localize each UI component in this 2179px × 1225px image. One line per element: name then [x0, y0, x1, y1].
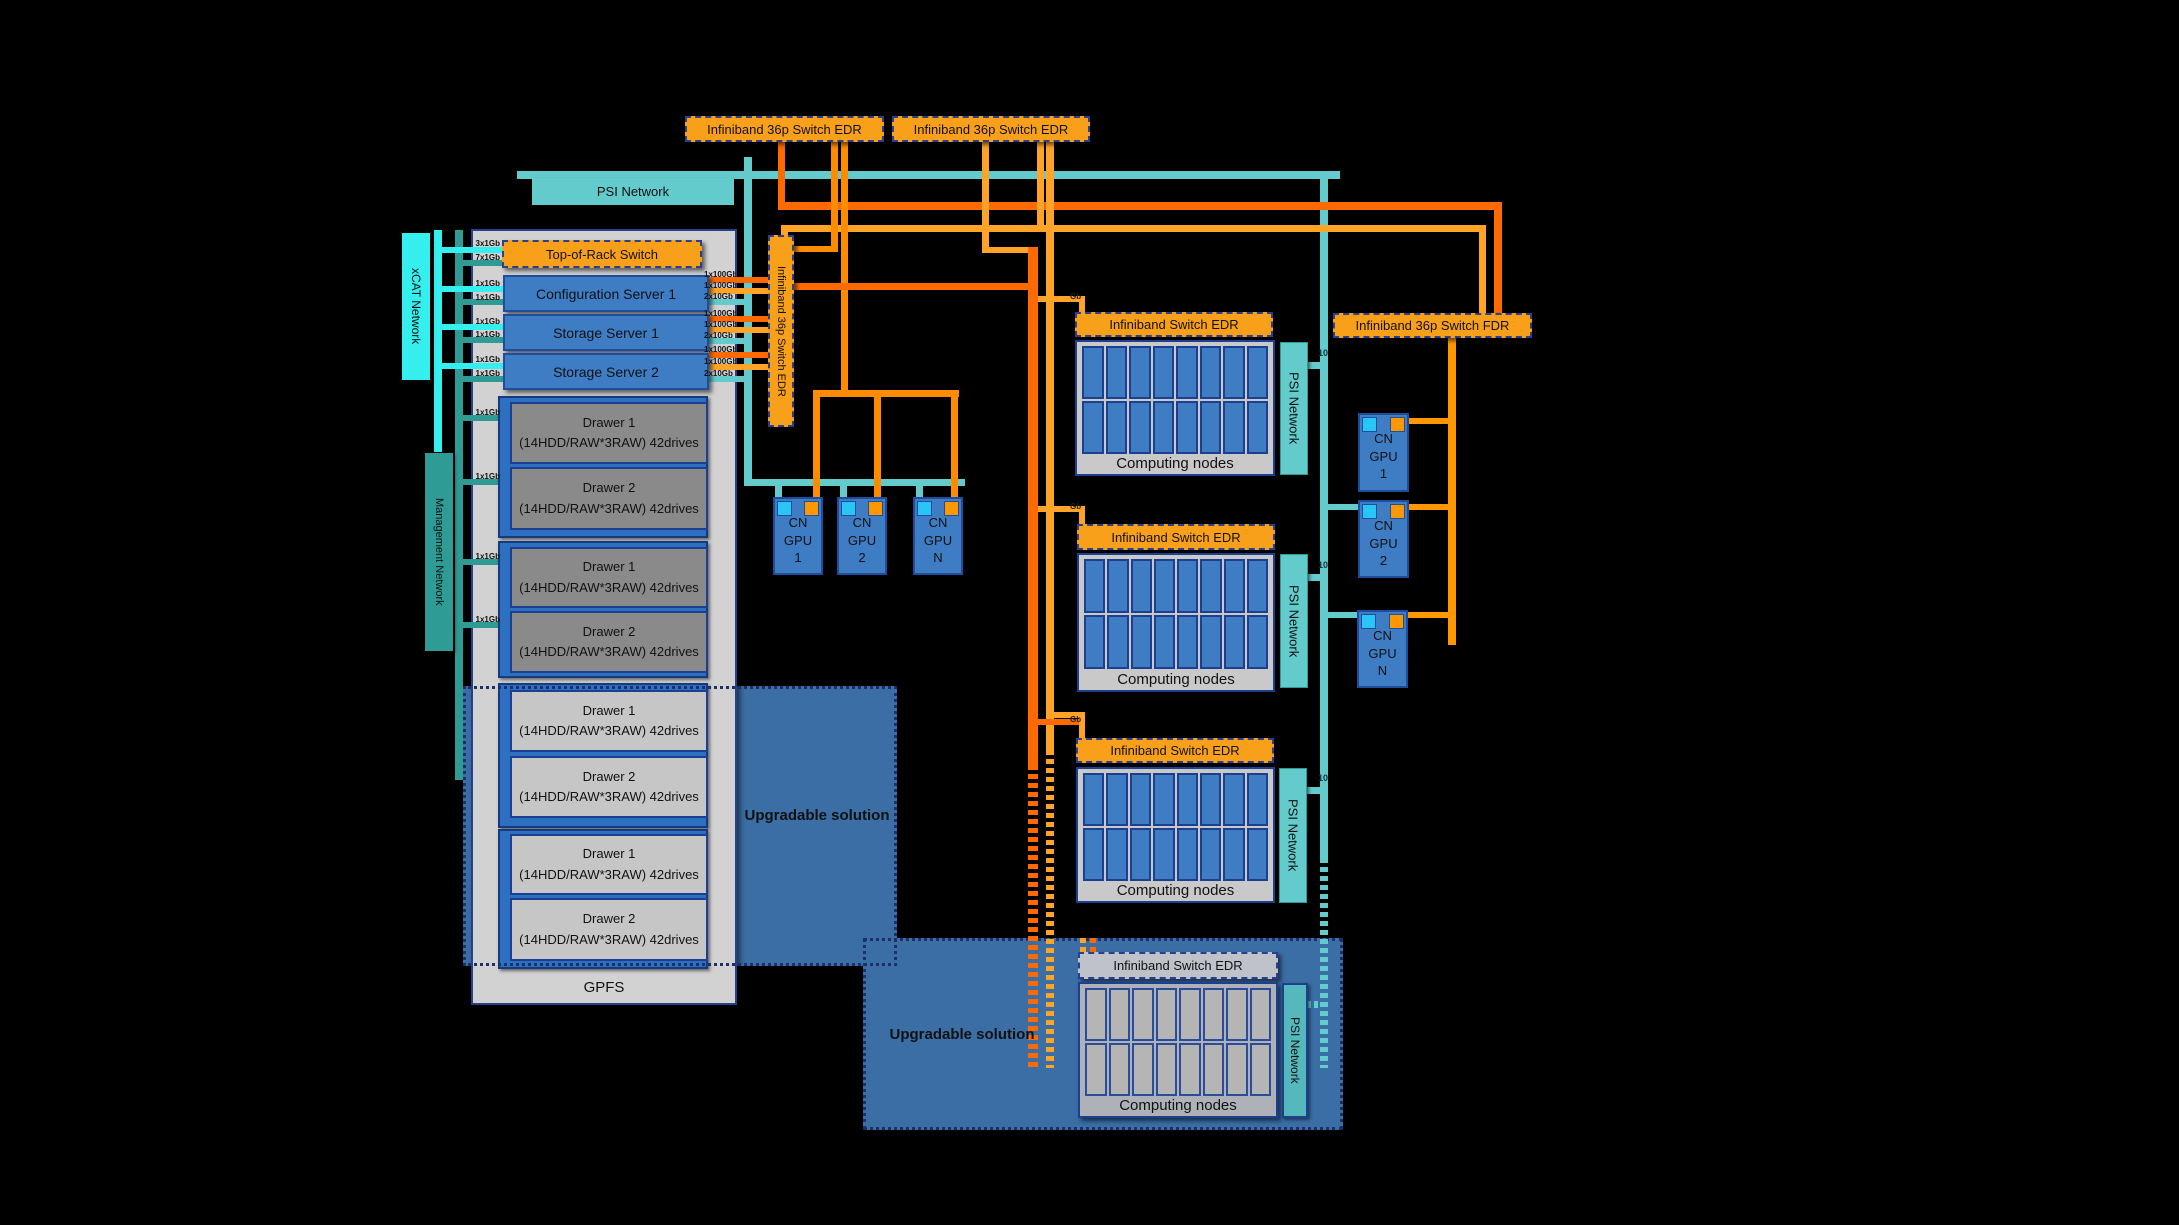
compute-node-cell: [1153, 401, 1175, 454]
psi-port-icon: [841, 501, 856, 516]
rgpu1-stub: [1409, 418, 1448, 424]
compute-node-cell: [1200, 559, 1221, 613]
port-label-1x1gb: 1x1Gb: [472, 356, 500, 364]
compute-node-cell: [1203, 988, 1225, 1041]
switch-label: Infiniband 36p Switch EDR: [707, 122, 862, 137]
sw2-port2-line: [1037, 142, 1044, 232]
psi-stub-block4-dashed: [1307, 1001, 1320, 1008]
compute-node-cell: [1082, 401, 1104, 454]
uplink-label-1x100gb: 1x100Gb: [704, 346, 736, 354]
drawer-title: Drawer 2: [583, 622, 636, 642]
psi-stub-rgpun: [1328, 612, 1357, 618]
port-label-1x1gb: 1x1Gb: [472, 294, 500, 302]
fdr-feed-dark: [1494, 202, 1502, 313]
uplink-label-1x100gb: 1x100Gb: [704, 321, 736, 329]
compute-node-cell: [1250, 1043, 1272, 1096]
drawer-spec: (14HDD/RAW*3RAW) 42drives: [519, 642, 699, 662]
compute-node-cell: [1106, 346, 1128, 399]
gpu-line2: GPU: [1360, 448, 1407, 466]
compute-node-cell: [1247, 828, 1268, 881]
server-text: Storage Server 1: [553, 325, 659, 341]
compute-node-cell: [1226, 1043, 1248, 1096]
psi-network-text: PSI Network: [597, 184, 669, 199]
compute-node-cell: [1176, 401, 1198, 454]
compute-node-cell: [1107, 559, 1128, 613]
psi-stub-block1: [1308, 362, 1320, 369]
drawer-spec: (14HDD/RAW*3RAW) 42drives: [519, 930, 699, 950]
port-label-1x1gb: 1x1Gb: [472, 280, 500, 288]
psi-bar-text: PSI Network: [1286, 799, 1301, 871]
rgpu2-stub: [1409, 504, 1448, 510]
port-label-1x1gb: 1x1Gb: [472, 616, 500, 624]
compute-node-cell: [1200, 346, 1222, 399]
gpu-line2: GPU: [775, 532, 821, 550]
psi-bar-text: PSI Network: [1287, 372, 1302, 444]
xcat-bus-line: [434, 230, 442, 452]
ib-port-icon: [944, 501, 959, 516]
vswitch-trunk-link: [794, 283, 1028, 290]
xcat-network-box: xCAT Network: [402, 233, 430, 380]
gpu-line1: CN: [1359, 627, 1406, 645]
compute-node-cell: [1247, 346, 1269, 399]
cn-gpu-2: CNGPU2: [837, 497, 887, 575]
compute-node-cell: [1177, 773, 1198, 826]
compute-node-cell: [1226, 988, 1248, 1041]
compute-node-cell: [1223, 401, 1245, 454]
edr-fdr-trunk-dark: [778, 202, 1502, 210]
vertical-switch-text: Infiniband 36p Switch EDR: [775, 266, 787, 397]
server-text: Configuration Server 1: [536, 286, 676, 302]
compute-node-cell: [1130, 773, 1151, 826]
compute-node-cell: [1179, 988, 1201, 1041]
drawer-title: Drawer 2: [583, 478, 636, 498]
top-of-rack-text: Top-of-Rack Switch: [546, 247, 658, 262]
gpu-line1: CN: [1360, 430, 1407, 448]
gpu-line2: GPU: [1360, 535, 1407, 553]
compute-block3: Computing nodes: [1076, 767, 1275, 903]
compute-block3-switch: Infiniband Switch EDR: [1076, 738, 1274, 763]
management-network-box: Management Network: [425, 453, 453, 651]
port-label-1x1gb: 1x1Gb: [472, 370, 500, 378]
compute-node-cell: [1200, 401, 1222, 454]
compute-node-cell: [1203, 1043, 1225, 1096]
compute-node-cell: [1084, 559, 1105, 613]
hpc-architecture-diagram: Infiniband 36p Switch EDR Infiniband 36p…: [0, 0, 2179, 1225]
compute-node-cell: [1247, 615, 1268, 669]
drawer-1-2: Drawer 2(14HDD/RAW*3RAW) 42drives: [510, 467, 708, 530]
computing-nodes-label: Computing nodes: [1083, 882, 1268, 899]
compute-node-cell: [1156, 988, 1178, 1041]
gpu-line3: 1: [1360, 465, 1407, 483]
gpu2-ib-stub: [874, 397, 881, 499]
compute-node-cell: [1085, 1043, 1107, 1096]
compute-node-cell: [1247, 773, 1268, 826]
uplink-label-2x10gb: 2x10Gb: [704, 370, 736, 378]
rgpun-stub: [1408, 612, 1448, 618]
compute-block1: Computing nodes: [1075, 340, 1275, 476]
compute-node-cell: [1083, 773, 1104, 826]
psi-stub-block2: [1308, 574, 1320, 581]
port-label-7x1gb: 7x1Gb: [472, 254, 500, 262]
port-label-1x1gb: 1x1Gb: [472, 553, 500, 561]
drawer-title: Drawer 1: [583, 557, 636, 577]
psi-network-label: PSI Network: [532, 178, 734, 205]
compute-node-cell: [1132, 988, 1154, 1041]
compute-node-cell: [1154, 615, 1175, 669]
psi-port-icon: [917, 501, 932, 516]
sw1-port2-line: [831, 142, 838, 252]
psi-port-icon: [777, 501, 792, 516]
drawer-4-1: Drawer 1(14HDD/RAW*3RAW) 42drives: [510, 834, 708, 895]
gpu-line3: 1: [775, 549, 821, 567]
configuration-server-1: Configuration Server 1: [503, 275, 709, 312]
cn-gpu-n: CNGPUN: [913, 497, 963, 575]
drawer-4-2: Drawer 2(14HDD/RAW*3RAW) 42drives: [510, 898, 708, 961]
compute-node-cell: [1085, 988, 1107, 1041]
block-switch-text: Infiniband Switch EDR: [1111, 530, 1240, 545]
compute-node-cell: [1107, 615, 1128, 669]
compute-node-cell: [1224, 615, 1245, 669]
sw1-port1-line: [778, 142, 785, 206]
compute-block3-psi: PSI Network: [1279, 768, 1307, 903]
top-of-rack-switch: Top-of-Rack Switch: [502, 240, 702, 268]
compute-block4-psi: PSI Network: [1282, 983, 1308, 1118]
port-label-1x1gb: 1x1Gb: [472, 473, 500, 481]
ib-port-icon: [804, 501, 819, 516]
uplink-label-2x10gb: 2x10Gb: [704, 293, 736, 301]
drawer-title: Drawer 1: [583, 701, 636, 721]
compute-node-cell: [1153, 828, 1174, 881]
infiniband-switch-edr-top-1: Infiniband 36p Switch EDR: [685, 116, 884, 142]
management-network-text: Management Network: [425, 453, 453, 651]
drawer-spec: (14HDD/RAW*3RAW) 42drives: [519, 721, 699, 741]
uplink-label-1x100gb: 1x100Gb: [704, 310, 736, 318]
gpu-line1: CN: [915, 514, 961, 532]
trunk-label-gb: Gb: [1070, 293, 1081, 301]
compute-node-cell: [1153, 346, 1175, 399]
drawer-spec: (14HDD/RAW*3RAW) 42drives: [519, 865, 699, 885]
port-label-1x1gb: 1x1Gb: [472, 331, 500, 339]
compute-node-cell: [1129, 346, 1151, 399]
fdr-feed-light: [1479, 225, 1486, 313]
drawer-spec: (14HDD/RAW*3RAW) 42drives: [519, 499, 699, 519]
uplink-label-1x100gb: 1x100Gb: [704, 282, 736, 290]
compute-node-grid: [1083, 773, 1268, 881]
psi-port-icon: [1362, 504, 1377, 519]
trunk-line-2-dashed: [1046, 750, 1054, 1068]
gpu1-ib-stub: [813, 397, 820, 499]
compute-node-cell: [1224, 559, 1245, 613]
compute-node-cell: [1083, 828, 1104, 881]
compute-node-grid: [1082, 346, 1268, 454]
compute-node-cell: [1177, 559, 1198, 613]
compute-block2-psi: PSI Network: [1280, 554, 1308, 688]
compute-node-cell: [1106, 773, 1127, 826]
gpu-line3: N: [1359, 662, 1406, 680]
compute-block1-psi: PSI Network: [1280, 342, 1308, 475]
compute-node-cell: [1200, 615, 1221, 669]
gpu-line1: CN: [1360, 517, 1407, 535]
block-switch-text: Infiniband Switch EDR: [1110, 743, 1239, 758]
psi-stub-rgpu2: [1328, 504, 1358, 510]
xcat-network-text: xCAT Network: [402, 233, 430, 380]
rgpu-rail: [1448, 338, 1456, 645]
port-label-3x1gb: 3x1Gb: [472, 240, 500, 248]
drawer-1-1: Drawer 1(14HDD/RAW*3RAW) 42drives: [510, 402, 708, 464]
computing-nodes-label: Computing nodes: [1082, 455, 1268, 472]
gpu-line3: 2: [839, 549, 885, 567]
gpu-line2: GPU: [839, 532, 885, 550]
psi-label-10: 10: [1318, 774, 1328, 783]
psi-stub-block3: [1307, 787, 1320, 794]
trunk-label-gb: Gb: [1070, 716, 1081, 724]
psi-bar-text: PSI Network: [1287, 585, 1302, 657]
compute-node-cell: [1223, 773, 1244, 826]
compute-node-grid: [1085, 988, 1271, 1096]
compute-node-cell: [1131, 615, 1152, 669]
compute-node-cell: [1106, 828, 1127, 881]
compute-node-cell: [1177, 615, 1198, 669]
gpu-line2: GPU: [1359, 645, 1406, 663]
compute-node-cell: [1106, 401, 1128, 454]
drawer-2-1: Drawer 1(14HDD/RAW*3RAW) 42drives: [510, 547, 708, 608]
psi-right-drop-line: [1320, 171, 1328, 858]
compute-node-cell: [1223, 346, 1245, 399]
compute-block4: Computing nodes: [1078, 982, 1278, 1118]
trunk-label-gb: Gb: [1070, 503, 1081, 511]
compute-node-grid: [1084, 559, 1268, 669]
sw2-port1-line: [982, 142, 989, 253]
psi-port-icon: [1362, 417, 1377, 432]
computing-nodes-label: Computing nodes: [1085, 1097, 1271, 1114]
gpu-psi-rail: [744, 479, 965, 486]
compute-node-cell: [1223, 828, 1244, 881]
infiniband-switch-edr-top-2: Infiniband 36p Switch EDR: [892, 116, 1090, 142]
drawer-title: Drawer 1: [583, 844, 636, 864]
sw1-port3-line: [841, 142, 848, 397]
management-bus-line: [455, 230, 463, 780]
port-label-1x1gb: 1x1Gb: [472, 409, 500, 417]
drawer-2-2: Drawer 2(14HDD/RAW*3RAW) 42drives: [510, 611, 708, 673]
cn-gpu-right-1: CNGPU1: [1358, 413, 1409, 492]
port-label-1x1gb: 1x1Gb: [472, 318, 500, 326]
infiniband-36p-switch-fdr: Infiniband 36p Switch FDR: [1333, 313, 1532, 338]
trunk-line-1: [1028, 247, 1038, 765]
ib-port-icon: [1390, 504, 1405, 519]
trunk-line-2: [1046, 142, 1054, 750]
gpu-ib-rail: [813, 390, 959, 397]
cn-gpu-right-2: CNGPU2: [1358, 500, 1409, 578]
ib-port-icon: [1389, 614, 1404, 629]
fdr-switch-text: Infiniband 36p Switch FDR: [1356, 318, 1510, 333]
compute-node-cell: [1177, 828, 1198, 881]
uplink-label-1x100gb: 1x100Gb: [704, 358, 736, 366]
compute-node-cell: [1247, 559, 1268, 613]
compute-node-cell: [1154, 559, 1175, 613]
drawer-title: Drawer 2: [583, 909, 636, 929]
compute-block1-switch: Infiniband Switch EDR: [1075, 312, 1273, 337]
compute-node-cell: [1129, 401, 1151, 454]
storage-server-2: Storage Server 2: [503, 353, 709, 390]
drawer-3-2: Drawer 2(14HDD/RAW*3RAW) 42drives: [510, 756, 708, 818]
upgradable-compute-text: Upgradable solution: [877, 1022, 1047, 1046]
gpu-line1: CN: [839, 514, 885, 532]
compute-node-cell: [1247, 401, 1269, 454]
drawer-spec: (14HDD/RAW*3RAW) 42drives: [519, 578, 699, 598]
drawer-spec: (14HDD/RAW*3RAW) 42drives: [519, 433, 699, 453]
compute-block2: Computing nodes: [1077, 553, 1275, 692]
drawer-spec: (14HDD/RAW*3RAW) 42drives: [519, 787, 699, 807]
psi-port-icon: [1361, 614, 1376, 629]
upgradable-storage-text: Upgradable solution: [742, 802, 892, 828]
ib-port-icon: [1390, 417, 1405, 432]
compute-node-cell: [1176, 346, 1198, 399]
compute-node-cell: [1109, 1043, 1131, 1096]
compute-node-cell: [1132, 1043, 1154, 1096]
compute-node-cell: [1109, 988, 1131, 1041]
compute-node-cell: [1200, 773, 1221, 826]
computing-nodes-label: Computing nodes: [1084, 671, 1268, 688]
psi-bar-text: PSI Network: [1288, 1017, 1302, 1084]
infiniband-36p-switch-edr-vertical: Infiniband 36p Switch EDR: [768, 235, 794, 427]
compute-block4-switch: Infiniband Switch EDR: [1078, 952, 1278, 979]
compute-node-cell: [1131, 559, 1152, 613]
psi-right-drop-line-dashed: [1320, 858, 1328, 1068]
server-text: Storage Server 2: [553, 364, 659, 380]
psi-label-10: 10: [1318, 561, 1328, 570]
gpun-ib-stub: [951, 397, 958, 499]
cn-gpu-right-n: CNGPUN: [1357, 610, 1408, 688]
compute-node-cell: [1130, 828, 1151, 881]
gpu-line2: GPU: [915, 532, 961, 550]
edr-fdr-trunk-light: [781, 225, 1486, 232]
block-switch-text: Infiniband Switch EDR: [1109, 317, 1238, 332]
compute-node-cell: [1250, 988, 1272, 1041]
ib-port-icon: [868, 501, 883, 516]
gpu-line1: CN: [775, 514, 821, 532]
compute-node-cell: [1153, 773, 1174, 826]
compute-node-cell: [1179, 1043, 1201, 1096]
compute-node-cell: [1082, 346, 1104, 399]
drawer-title: Drawer 1: [583, 413, 636, 433]
cn-gpu-1: CNGPU1: [773, 497, 823, 575]
uplink-label-2x10gb: 2x10Gb: [704, 332, 736, 340]
compute-node-cell: [1084, 615, 1105, 669]
psi-label-10: 10: [1318, 349, 1328, 358]
vswitch-sw1-link: [794, 246, 838, 252]
compute-node-cell: [1156, 1043, 1178, 1096]
compute-node-cell: [1200, 828, 1221, 881]
switch-label: Infiniband 36p Switch EDR: [914, 122, 1069, 137]
drawer-title: Drawer 2: [583, 767, 636, 787]
uplink-label-1x100gb: 1x100Gb: [704, 271, 736, 279]
gpfs-label: GPFS: [471, 979, 737, 999]
block-switch-text: Infiniband Switch EDR: [1113, 958, 1242, 973]
compute-block2-switch: Infiniband Switch EDR: [1077, 524, 1275, 550]
drawer-3-1: Drawer 1(14HDD/RAW*3RAW) 42drives: [510, 690, 708, 752]
storage-server-1: Storage Server 1: [503, 314, 709, 351]
gpu-line3: 2: [1360, 552, 1407, 570]
gpu-line3: N: [915, 549, 961, 567]
